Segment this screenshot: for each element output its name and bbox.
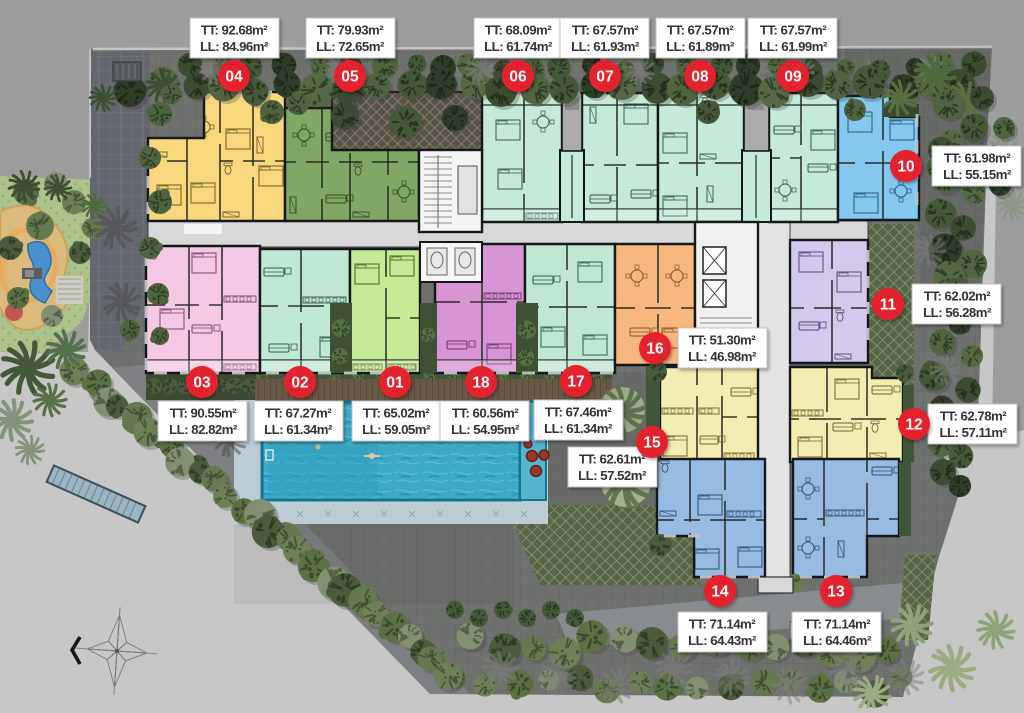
- svg-text:LL: 64.43m²: LL: 64.43m²: [688, 633, 757, 648]
- svg-text:LL: 57.11m²: LL: 57.11m²: [939, 425, 1007, 440]
- svg-text:07: 07: [596, 69, 613, 86]
- svg-text:LL: 55.15m²: LL: 55.15m²: [943, 167, 1012, 182]
- svg-text:TT: 65.02m²: TT: 65.02m²: [363, 406, 430, 421]
- svg-text:17: 17: [567, 374, 584, 391]
- svg-text:TT: 71.14m²: TT: 71.14m²: [689, 617, 756, 632]
- svg-text:LL: 61.89m²: LL: 61.89m²: [666, 39, 735, 54]
- svg-text:LL: 57.52m²: LL: 57.52m²: [578, 468, 647, 483]
- svg-text:TT: 67.57m²: TT: 67.57m²: [760, 23, 827, 38]
- svg-text:TT: 51.30m²: TT: 51.30m²: [689, 333, 756, 348]
- svg-text:LL: 64.46m²: LL: 64.46m²: [803, 633, 872, 648]
- svg-text:LL: 61.99m²: LL: 61.99m²: [759, 39, 828, 54]
- svg-text:15: 15: [643, 435, 661, 452]
- svg-text:TT: 71.14m²: TT: 71.14m²: [804, 617, 871, 632]
- svg-text:TT: 67.46m²: TT: 67.46m²: [545, 405, 612, 420]
- svg-text:11: 11: [880, 297, 897, 314]
- svg-text:09: 09: [784, 69, 802, 86]
- svg-text:TT: 67.57m²: TT: 67.57m²: [667, 23, 734, 38]
- svg-text:LL: 46.98m²: LL: 46.98m²: [688, 349, 757, 364]
- svg-text:LL: 56.28m²: LL: 56.28m²: [923, 305, 992, 320]
- svg-text:TT: 67.57m²: TT: 67.57m²: [572, 23, 639, 38]
- svg-text:LL: 61.74m²: LL: 61.74m²: [484, 39, 553, 54]
- svg-text:LL: 82.82m²: LL: 82.82m²: [169, 422, 238, 437]
- svg-text:TT: 67.27m²: TT: 67.27m²: [265, 406, 332, 421]
- svg-text:14: 14: [711, 584, 729, 601]
- svg-text:LL: 54.95m²: LL: 54.95m²: [451, 422, 520, 437]
- svg-text:TT: 61.98m²: TT: 61.98m²: [944, 151, 1011, 166]
- svg-text:LL: 61.34m²: LL: 61.34m²: [544, 421, 613, 436]
- svg-text:02: 02: [291, 375, 308, 392]
- svg-text:01: 01: [386, 375, 404, 392]
- svg-text:13: 13: [827, 584, 845, 601]
- svg-text:TT: 68.09m²: TT: 68.09m²: [485, 23, 552, 38]
- svg-text:LL: 61.34m²: LL: 61.34m²: [264, 422, 333, 437]
- svg-text:18: 18: [472, 375, 490, 392]
- svg-text:TT: 79.93m²: TT: 79.93m²: [317, 23, 384, 38]
- svg-text:12: 12: [905, 417, 922, 434]
- svg-text:10: 10: [897, 159, 914, 176]
- svg-text:LL: 84.96m²: LL: 84.96m²: [200, 39, 269, 54]
- svg-text:TT: 62.78m²: TT: 62.78m²: [940, 409, 1007, 424]
- svg-text:08: 08: [691, 69, 709, 86]
- svg-text:TT: 60.56m²: TT: 60.56m²: [452, 406, 519, 421]
- svg-text:TT: 62.61m²: TT: 62.61m²: [579, 452, 646, 467]
- svg-text:03: 03: [193, 375, 211, 392]
- svg-text:TT: 90.55m²: TT: 90.55m²: [170, 406, 237, 421]
- svg-text:05: 05: [341, 69, 359, 86]
- svg-text:LL: 61.93m²: LL: 61.93m²: [571, 39, 640, 54]
- svg-text:16: 16: [646, 341, 664, 358]
- svg-text:LL: 59.05m²: LL: 59.05m²: [362, 422, 431, 437]
- svg-text:04: 04: [225, 69, 243, 86]
- svg-text:TT: 62.02m²: TT: 62.02m²: [924, 289, 991, 304]
- svg-text:TT: 92.68m²: TT: 92.68m²: [201, 23, 268, 38]
- svg-text:LL: 72.65m²: LL: 72.65m²: [316, 39, 385, 54]
- svg-text:06: 06: [509, 69, 527, 86]
